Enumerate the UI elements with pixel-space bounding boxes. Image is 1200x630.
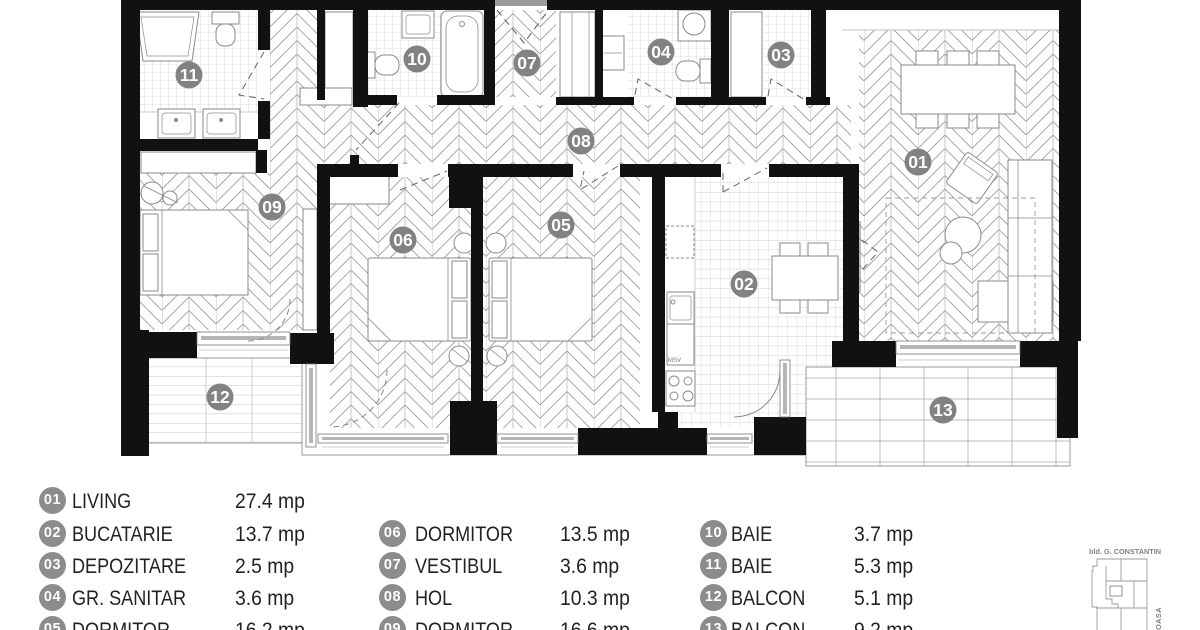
svg-text:04: 04 bbox=[651, 42, 671, 62]
svg-text:06: 06 bbox=[393, 230, 413, 250]
svg-text:08: 08 bbox=[571, 131, 591, 151]
svg-text:09: 09 bbox=[262, 197, 282, 217]
svg-text:11: 11 bbox=[180, 65, 199, 85]
svg-text:02: 02 bbox=[734, 274, 754, 294]
svg-text:07: 07 bbox=[517, 53, 536, 73]
svg-text:bld. G. CONSTANTIN: bld. G. CONSTANTIN bbox=[1089, 547, 1161, 556]
svg-text:01: 01 bbox=[908, 152, 928, 172]
svg-text:10: 10 bbox=[407, 49, 427, 69]
svg-text:03: 03 bbox=[771, 45, 791, 65]
svg-text:MSV: MSV bbox=[668, 358, 681, 364]
svg-text:13: 13 bbox=[933, 400, 953, 420]
svg-text:12: 12 bbox=[210, 387, 230, 407]
svg-text:OASA: OASA bbox=[1154, 607, 1163, 630]
svg-text:05: 05 bbox=[551, 215, 571, 235]
